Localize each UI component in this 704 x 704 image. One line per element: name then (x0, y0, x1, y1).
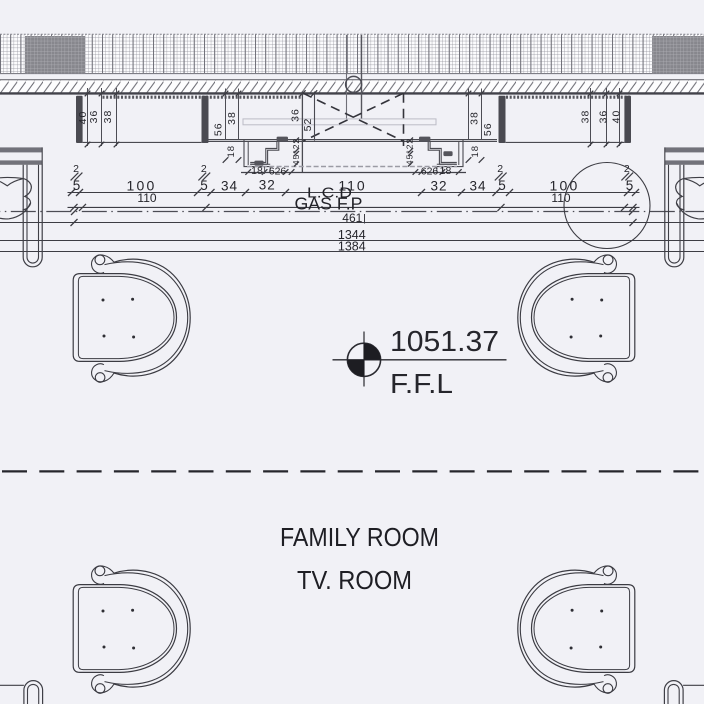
svg-text:1384: 1384 (338, 239, 366, 253)
svg-text:110: 110 (551, 191, 570, 205)
svg-text:38: 38 (226, 111, 238, 125)
svg-text:1051.37: 1051.37 (390, 326, 499, 358)
svg-text:18: 18 (251, 165, 263, 177)
svg-text:FAMILY ROOM: FAMILY ROOM (280, 524, 439, 552)
svg-text:626: 626 (269, 166, 287, 178)
svg-text:5: 5 (626, 178, 634, 193)
svg-text:36: 36 (88, 110, 100, 124)
svg-text:56: 56 (213, 122, 225, 136)
svg-text:56: 56 (482, 122, 494, 136)
svg-text:52: 52 (302, 118, 314, 132)
svg-text:5: 5 (200, 178, 208, 193)
svg-text:38: 38 (580, 110, 592, 124)
svg-text:461: 461 (342, 211, 362, 225)
svg-text:40: 40 (611, 110, 623, 124)
svg-text:F.F.L: F.F.L (390, 368, 453, 399)
svg-text:TV. ROOM: TV. ROOM (297, 567, 412, 595)
svg-text:38: 38 (102, 110, 114, 124)
svg-text:38: 38 (469, 111, 481, 125)
svg-text:34: 34 (221, 179, 238, 194)
svg-text:32: 32 (259, 178, 276, 193)
svg-text:18: 18 (226, 145, 237, 158)
svg-text:626: 626 (421, 166, 439, 178)
svg-text:34: 34 (469, 179, 486, 194)
svg-text:36: 36 (597, 110, 609, 124)
svg-text:5: 5 (73, 178, 81, 193)
svg-text:36: 36 (290, 108, 302, 122)
svg-text:18: 18 (470, 145, 481, 158)
svg-text:110: 110 (137, 191, 156, 205)
svg-text:32: 32 (430, 179, 447, 194)
svg-text:18: 18 (440, 165, 452, 177)
